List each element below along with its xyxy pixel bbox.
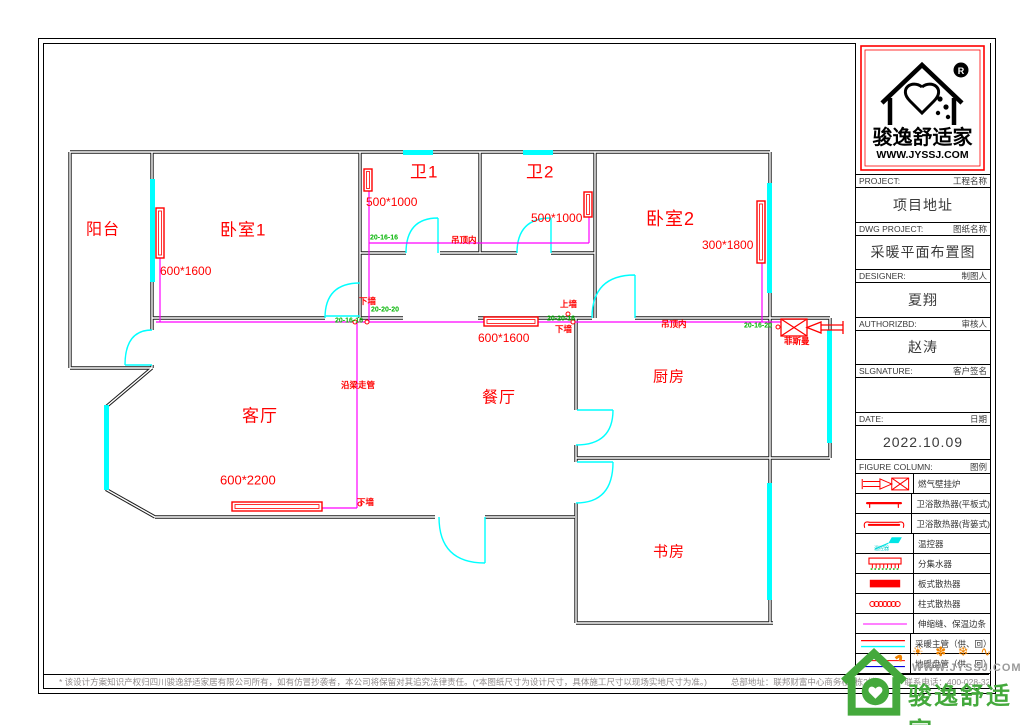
legend-icon-cell [856, 634, 911, 653]
legend-label: 伸缩缝、保温边条 [914, 614, 990, 633]
radiator-size-label: 500*1000 [366, 196, 417, 208]
legend-icon-cell [856, 494, 912, 513]
window [767, 183, 772, 293]
pipe-living [322, 322, 357, 508]
legend-icon [856, 635, 910, 653]
radiator-size-label: 600*1600 [478, 332, 529, 344]
company-logo: R 骏逸舒适家 WWW.JYSSJ.COM [856, 43, 990, 175]
pipe-junctions [353, 312, 780, 506]
house-icon [882, 65, 962, 125]
pipe-note-label: 菲斯曼 [784, 337, 810, 346]
legend-label: 柱式散热器 [914, 594, 990, 613]
window [104, 405, 109, 490]
boiler-icon [781, 319, 843, 336]
room-label: 卧室2 [646, 210, 695, 228]
floor-plan: 阳台卧室1卫1卫2卧室2客厅餐厅厨房书房 600*1600500*1000500… [46, 46, 855, 674]
title-block-row: DATE: 日期 2022.10.09 [856, 413, 990, 461]
door-bath1 [406, 218, 438, 253]
logo-brand-text: 骏逸舒适家 [873, 125, 974, 149]
pipe-note-label: 下墙 [357, 498, 374, 507]
window [403, 150, 433, 155]
radiator-dining [484, 317, 538, 326]
title-block-row: DESIGNER: 制图人 夏翔 [856, 270, 990, 318]
legend-header-en: FIGURE COLUMN: [859, 462, 933, 472]
field-label-cn: 制图人 [961, 270, 987, 282]
legend-row: 板式散热器 [856, 574, 990, 594]
field-value: 赵涛 [856, 331, 990, 366]
drawing-sheet: 阳台卧室1卫1卫2卧室2客厅餐厅厨房书房 600*1600500*1000500… [0, 0, 1034, 725]
window [150, 179, 155, 282]
field-label-en: PROJECT: [859, 176, 900, 186]
field-label-cn: 工程名称 [953, 175, 987, 187]
pipe-note-label: 吊顶内 [451, 236, 477, 245]
room-label: 卫2 [526, 163, 554, 180]
legend-icon [858, 575, 912, 593]
legend-row: 温控器 温控器 [856, 534, 990, 554]
window [827, 330, 832, 443]
door-balcony [125, 330, 152, 365]
radiator-bath1 [364, 169, 372, 191]
legend-label: 分集水器 [914, 554, 990, 573]
radiator-bedroom2 [757, 201, 765, 263]
legend-header: FIGURE COLUMN: 图例 [856, 460, 990, 474]
radiator-size-label: 500*1000 [531, 212, 582, 224]
field-label-cn: 图纸名称 [953, 223, 987, 235]
title-block-row: AUTHORIZBD: 审核人 赵涛 [856, 318, 990, 366]
legend-icon [857, 495, 911, 513]
legend: 燃气壁挂炉 卫浴散热器(平板式) 卫浴散热器(背篓式) [856, 474, 990, 674]
field-value: 夏翔 [856, 283, 990, 318]
radiator-size-label: 300*1800 [702, 239, 753, 251]
room-label: 书房 [653, 545, 685, 560]
door-bedroom2 [592, 275, 635, 318]
radiator-size-label: 600*2200 [220, 474, 276, 487]
legend-row: 分集水器 [856, 554, 990, 574]
legend-icon-tag: 温控器 [874, 545, 889, 552]
title-block-row: DWG PROJECT: 图纸名称 采暖平面布置图 [856, 223, 990, 271]
field-label-en: DWG PROJECT: [859, 224, 923, 234]
floor-plan-drawing [46, 46, 855, 674]
legend-icon-cell: 温控器 [856, 534, 914, 553]
footer-note-bar: * 该设计方案知识产权归四川骏逸舒适家居有限公司所有，如有仿冒抄袭者，本公司将保… [43, 674, 989, 688]
room-label: 阳台 [86, 222, 120, 238]
field-label-en: DATE: [859, 414, 883, 424]
logo-site-text: WWW.JYSSJ.COM [876, 149, 968, 161]
windows [104, 150, 832, 600]
field-value [856, 378, 990, 413]
paw-dots-icon [936, 96, 950, 119]
legend-icon-cell [856, 614, 914, 633]
field-label-en: SLGNATURE: [859, 366, 913, 376]
legend-icon [856, 655, 910, 673]
legend-label: 燃气壁挂炉 [914, 474, 990, 493]
room-label: 客厅 [242, 407, 278, 424]
field-value: 项目地址 [856, 188, 990, 223]
legend-icon [858, 595, 912, 613]
legend-label: 板式散热器 [914, 574, 990, 593]
copyright-disclaimer: * 该设计方案知识产权归四川骏逸舒适家居有限公司所有，如有仿冒抄袭者，本公司将保… [59, 676, 707, 688]
title-block-rows: PROJECT: 工程名称 项目地址 DWG PROJECT: 图纸名称 采暖平… [856, 175, 990, 460]
legend-icon-cell [856, 514, 912, 533]
legend-row: 燃气壁挂炉 [856, 474, 990, 494]
legend-label: 采暖主管（供、回） [911, 634, 992, 653]
pipe-note-label: 沿梁走管 [341, 381, 375, 390]
field-label-cn: 审核人 [961, 318, 987, 330]
legend-row: 卫浴散热器(背篓式) [856, 514, 990, 534]
field-label-en: AUTHORIZBD: [859, 319, 917, 329]
walls [70, 152, 830, 623]
door-bedroom1 [325, 283, 360, 318]
title-block-row: SLGNATURE: 客户签名 [856, 365, 990, 413]
contact-phone: 联系电话：400-028-3206 [904, 676, 989, 688]
legend-row: 地暖盘管（供、回） [856, 654, 990, 674]
legend-label: 卫浴散热器(背篓式) [912, 514, 990, 533]
field-label-cn: 日期 [970, 413, 987, 425]
radiator-bedroom1 [156, 208, 164, 258]
legend-header-cn: 图例 [970, 461, 987, 473]
door-entry [439, 517, 485, 563]
pipe-code-label: 20-20-20 [371, 306, 399, 313]
field-value: 2022.10.09 [856, 426, 990, 461]
pipe-code-label: 20-20-16 [547, 315, 575, 322]
company-logo-art: R 骏逸舒适家 WWW.JYSSJ.COM [856, 43, 989, 173]
hq-address: 总部地址：联邦财富中心商务楼2栋2楼 [731, 676, 876, 688]
legend-row: 伸缩缝、保温边条 [856, 614, 990, 634]
legend-label: 地暖盘管（供、回） [911, 654, 992, 673]
pipe-note-label: 上墙 [560, 300, 577, 309]
legend-icon [857, 515, 911, 533]
legend-icon [858, 475, 912, 493]
pipe-code-label: 20-16-16 [370, 234, 398, 241]
field-value: 采暖平面布置图 [856, 236, 990, 271]
door-kitchen [576, 410, 613, 445]
pipe-note-label: 下墙 [359, 297, 376, 306]
room-label: 卫1 [410, 163, 438, 180]
pipe-code-label: 20-16-16 [335, 317, 363, 324]
door-study [576, 462, 613, 503]
title-block: R 骏逸舒适家 WWW.JYSSJ.COM PROJECT: 工程名称 项目地址 [855, 43, 990, 674]
legend-icon-cell [856, 574, 914, 593]
legend-icon-cell [856, 594, 914, 613]
legend-row: 采暖主管（供、回） [856, 634, 990, 654]
logo-badge-letter: R [958, 66, 965, 76]
legend-icon [858, 615, 912, 633]
room-label: 卧室1 [220, 221, 266, 238]
radiator-bath2 [584, 192, 592, 217]
legend-icon-cell [856, 654, 911, 673]
pipe-note-label: 吊顶内 [661, 320, 687, 329]
room-label: 厨房 [653, 370, 685, 385]
legend-icon-cell [856, 474, 914, 493]
legend-label: 卫浴散热器(平板式) [912, 494, 990, 513]
legend-icon-cell [856, 554, 914, 573]
title-block-row: PROJECT: 工程名称 项目地址 [856, 175, 990, 223]
legend-icon [858, 555, 912, 573]
legend-row: 卫浴散热器(平板式) [856, 494, 990, 514]
room-label: 餐厅 [482, 390, 516, 406]
pipe-code-label: 20-16-20 [744, 322, 772, 329]
pipe-note-label: 下墙 [555, 325, 572, 334]
radiator-size-label: 600*1600 [160, 265, 211, 277]
field-label-cn: 客户签名 [953, 365, 987, 377]
window [523, 150, 553, 155]
legend-label: 温控器 [914, 534, 990, 553]
legend-row: 柱式散热器 [856, 594, 990, 614]
window [767, 483, 772, 600]
radiator-living [232, 502, 322, 511]
field-label-en: DESIGNER: [859, 271, 906, 281]
